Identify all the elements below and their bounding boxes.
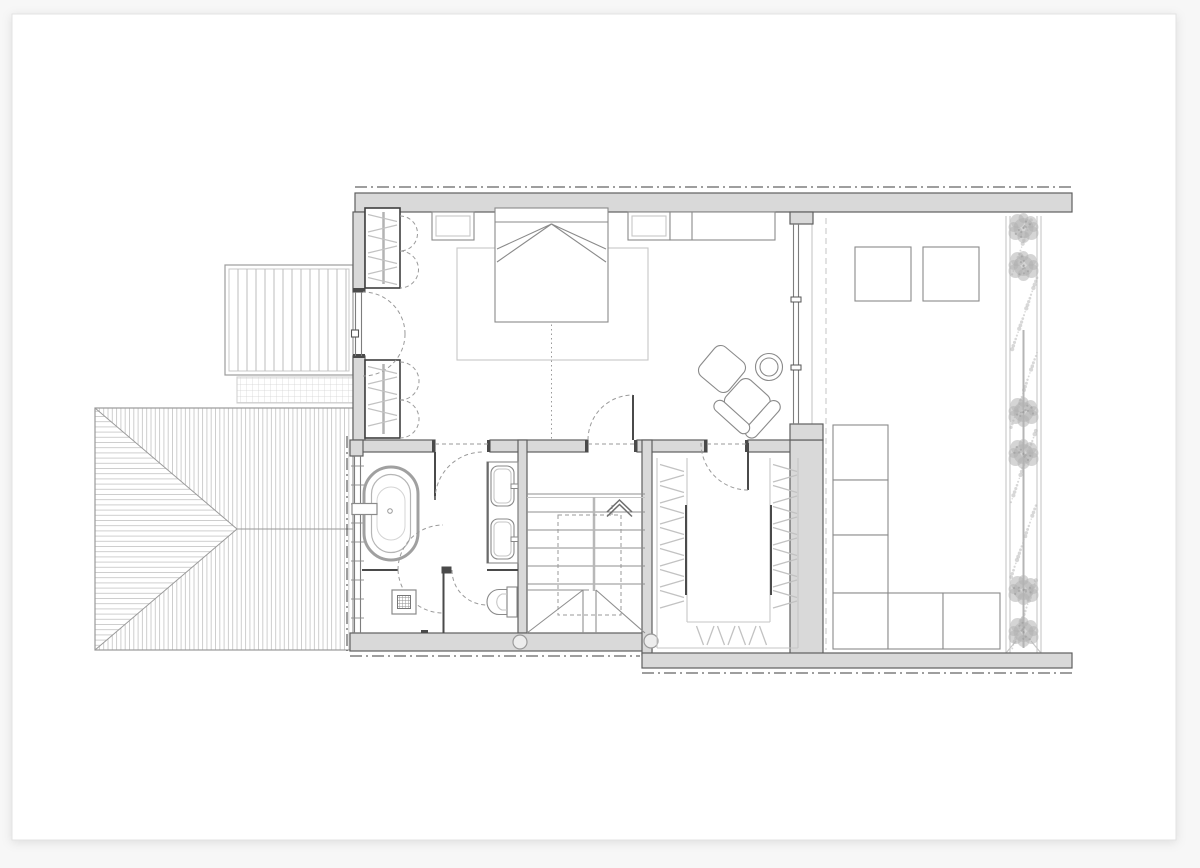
wall-glazing-stub-bottom	[790, 424, 823, 440]
wall-bath-west-stub	[350, 440, 363, 456]
bath-faucet	[352, 504, 377, 515]
column-2	[644, 634, 658, 648]
skylight-square-2	[923, 247, 979, 301]
nightstand-right	[628, 212, 670, 240]
wall-bedroom-south-1	[362, 440, 435, 452]
wall-top	[355, 193, 1072, 212]
bath-drain	[388, 509, 393, 514]
wall-bedroom-west-2	[353, 356, 365, 440]
double-bed	[495, 208, 608, 322]
wall-bath-stair	[518, 440, 527, 633]
sink-faucet-1	[511, 484, 518, 489]
door-handle	[352, 330, 359, 337]
wall-bath-south	[350, 633, 652, 651]
side-table	[756, 354, 783, 381]
balcony-deck	[225, 265, 353, 375]
glass-canopy	[237, 377, 353, 403]
hipped-roof	[95, 408, 353, 650]
column-1	[513, 635, 527, 649]
sink-faucet-2	[511, 537, 518, 542]
wall-bedroom-west-1	[353, 212, 365, 292]
floor-plan-canvas	[0, 0, 1200, 868]
floor-plan-page	[0, 0, 1200, 868]
sideboard	[670, 212, 775, 240]
wall-closet-terrace	[790, 440, 823, 655]
wall-glazing-stub-top	[790, 212, 813, 224]
skylight-square-1	[855, 247, 911, 301]
nightstand-left	[432, 212, 474, 240]
shower-drain	[392, 590, 416, 614]
wall-bedroom-south-2	[490, 440, 588, 452]
wall-south-terrace	[642, 653, 1072, 668]
